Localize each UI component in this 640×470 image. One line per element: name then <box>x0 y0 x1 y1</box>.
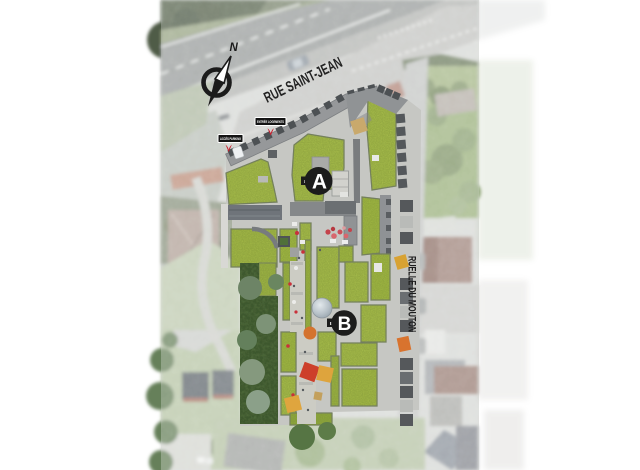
svg-text:RUELLE DU MOUTON: RUELLE DU MOUTON <box>406 256 418 332</box>
svg-text:ENTRÉE LOGEMENTS: ENTRÉE LOGEMENTS <box>257 119 284 124</box>
svg-text:B: B <box>338 314 352 335</box>
svg-text:N: N <box>230 42 239 54</box>
svg-text:ACCÈS PARKING: ACCÈS PARKING <box>220 136 241 141</box>
svg-text:A: A <box>312 171 327 194</box>
